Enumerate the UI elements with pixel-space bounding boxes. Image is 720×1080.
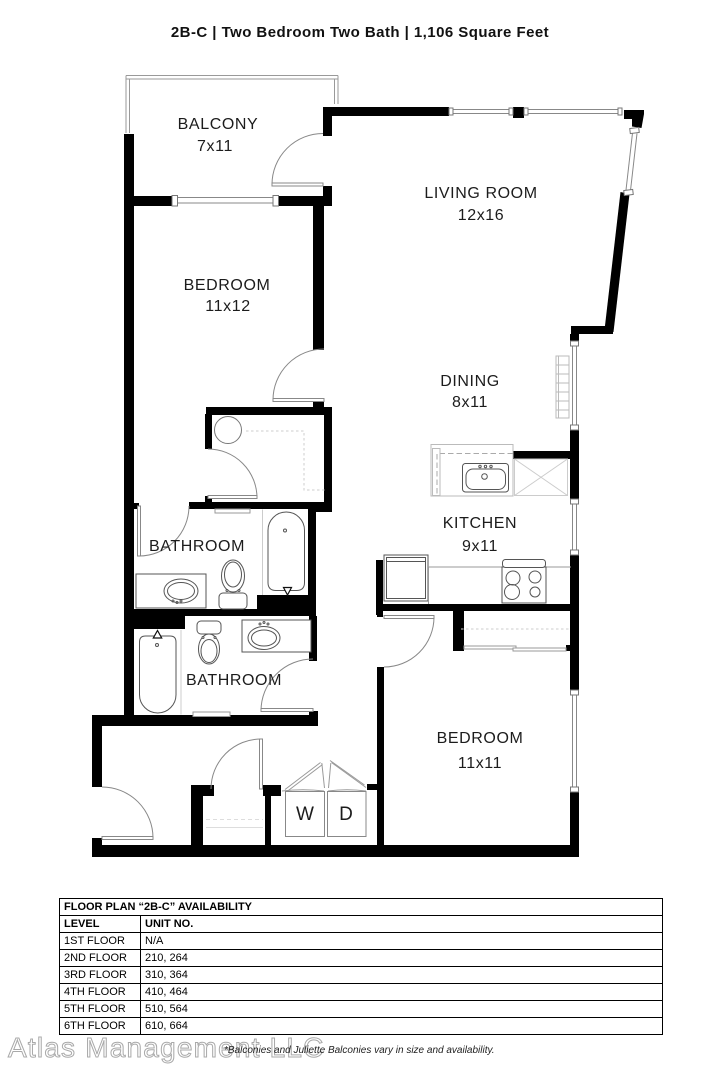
svg-text:9x11: 9x11 bbox=[462, 538, 498, 555]
svg-text:LIVING ROOM: LIVING ROOM bbox=[424, 185, 537, 202]
svg-text:12x16: 12x16 bbox=[458, 207, 505, 224]
svg-text:DINING: DINING bbox=[440, 373, 500, 390]
svg-text:W: W bbox=[296, 804, 314, 825]
svg-text:D: D bbox=[339, 804, 353, 825]
svg-text:7x11: 7x11 bbox=[197, 138, 233, 155]
svg-text:BATHROOM: BATHROOM bbox=[149, 538, 245, 555]
svg-text:KITCHEN: KITCHEN bbox=[443, 515, 517, 532]
svg-text:BEDROOM: BEDROOM bbox=[184, 277, 271, 294]
svg-text:11x11: 11x11 bbox=[458, 755, 502, 772]
svg-text:BEDROOM: BEDROOM bbox=[437, 730, 524, 747]
svg-text:BALCONY: BALCONY bbox=[178, 116, 259, 133]
svg-text:BATHROOM: BATHROOM bbox=[186, 672, 282, 689]
svg-text:11x12: 11x12 bbox=[205, 298, 250, 315]
svg-text:8x11: 8x11 bbox=[452, 394, 488, 411]
